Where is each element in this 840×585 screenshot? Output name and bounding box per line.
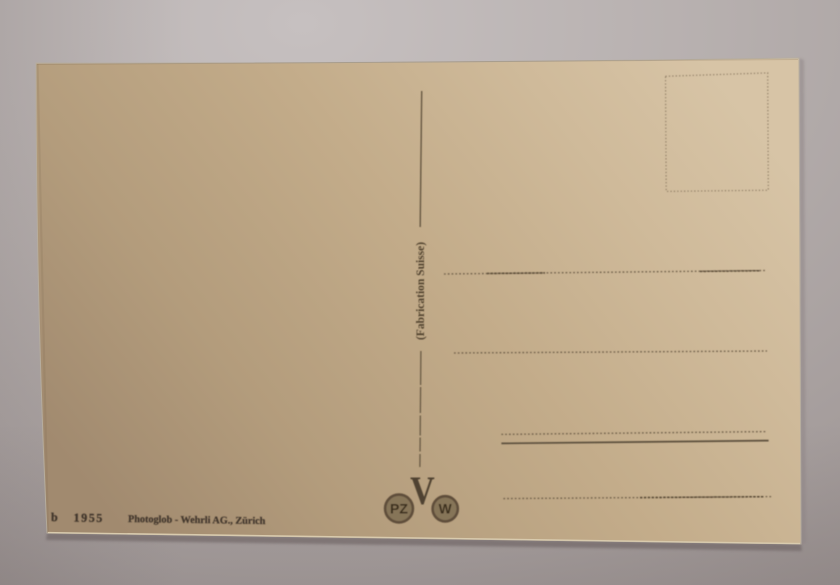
svg-text:W: W xyxy=(439,501,453,516)
svg-text:Photoglob - Wehrli AG., Zürich: Photoglob - Wehrli AG., Zürich xyxy=(128,514,266,527)
svg-text:PZ: PZ xyxy=(390,501,408,517)
svg-text:(Fabrication Suisse): (Fabrication Suisse) xyxy=(415,242,427,340)
svg-text:1955: 1955 xyxy=(73,511,104,525)
svg-text:b: b xyxy=(51,510,58,524)
